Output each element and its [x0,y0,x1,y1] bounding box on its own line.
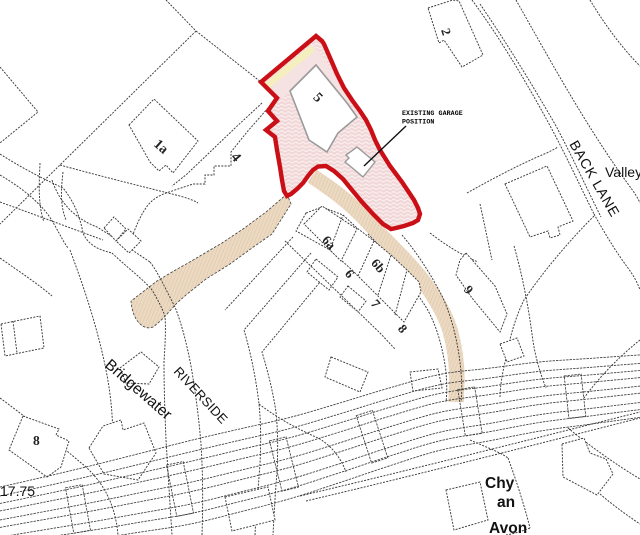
svg-text:EXISTING GARAGE: EXISTING GARAGE [402,110,463,117]
svg-text:8: 8 [33,433,40,448]
svg-text:Avon: Avon [489,520,527,535]
svg-text:POSITION: POSITION [402,119,434,126]
svg-text:an: an [497,494,515,511]
svg-text:Valley: Valley [605,164,640,180]
svg-text:17.75: 17.75 [0,483,35,499]
svg-text:Chy: Chy [485,475,515,492]
